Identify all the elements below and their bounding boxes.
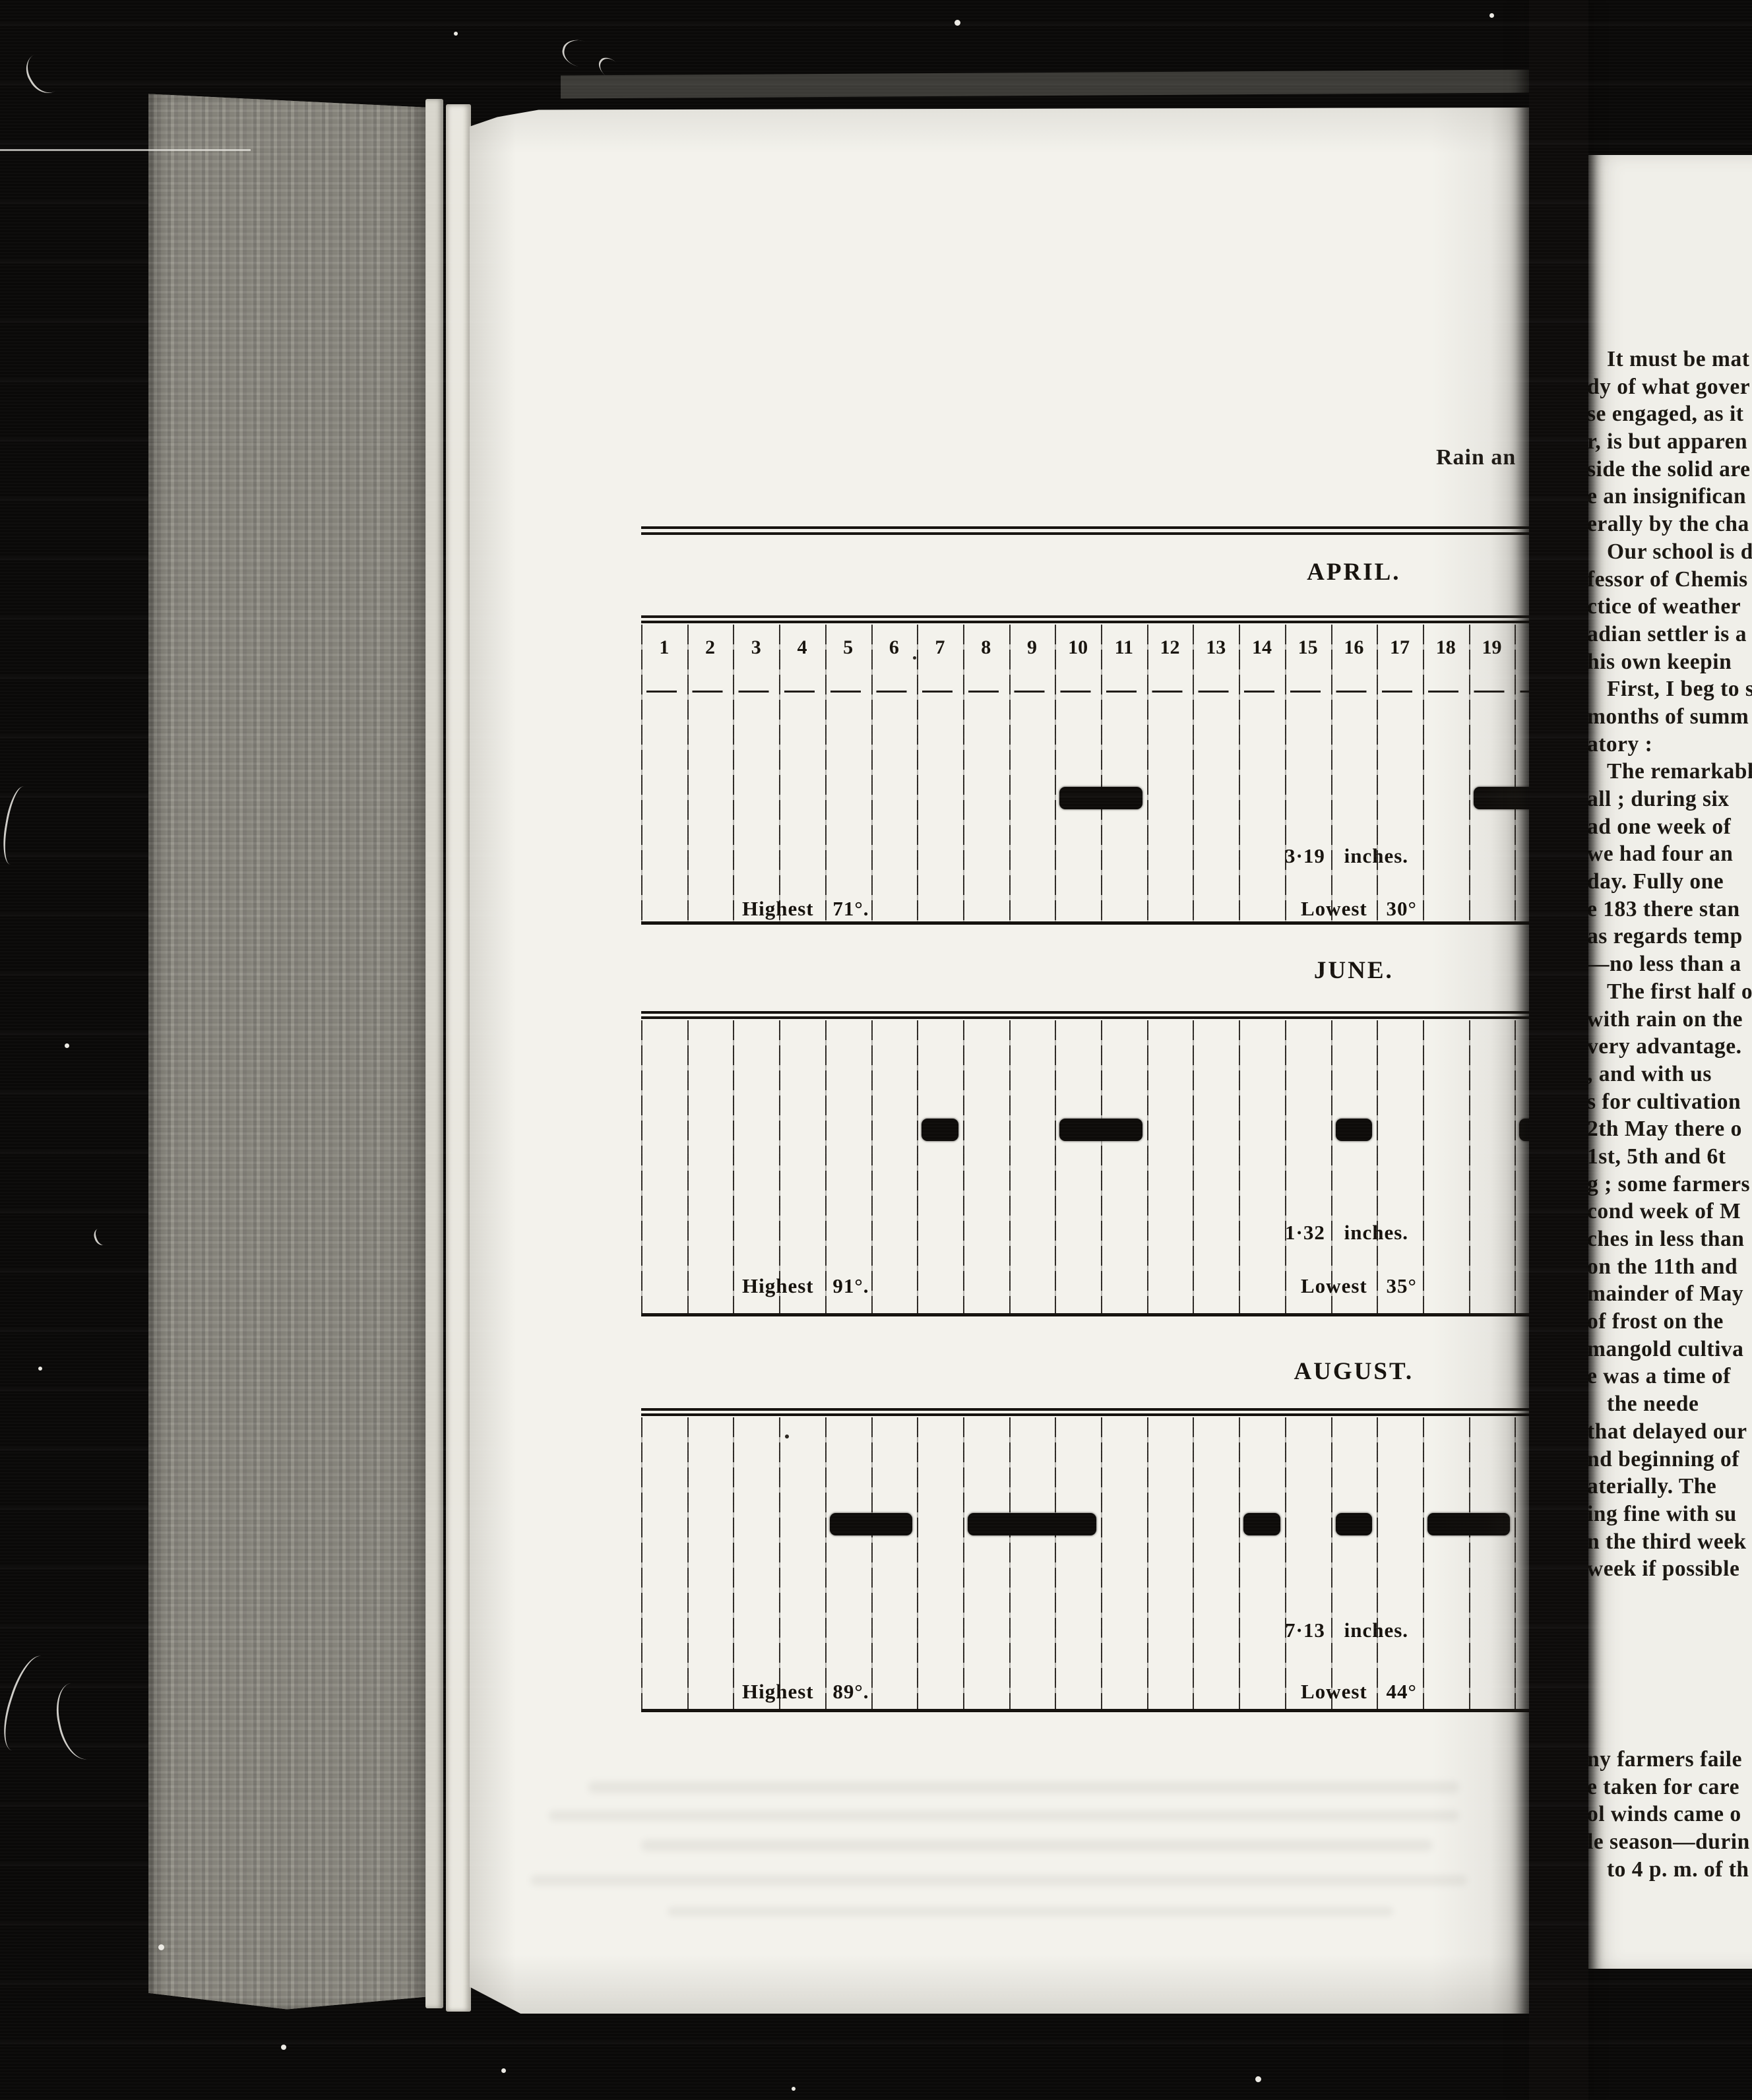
bleedthrough-streak xyxy=(530,1875,1467,1886)
cutoff-text-line: ing fine with su xyxy=(1587,1500,1752,1528)
rain-day-bar xyxy=(1059,1119,1142,1141)
day-number-label: 19 xyxy=(1469,636,1515,659)
day-column-line xyxy=(1469,625,1470,922)
day-number-label: 10 xyxy=(1055,636,1101,659)
day-column-line xyxy=(1377,625,1378,922)
lowest-temperature-label: Lowest 35° xyxy=(1301,1274,1417,1298)
book-page-stack-edge xyxy=(148,91,425,2010)
dust-artifact xyxy=(454,32,458,36)
day-column-line xyxy=(871,1020,873,1314)
right-page: It must be matdy of what goverse engaged… xyxy=(1586,155,1752,1969)
cutoff-text-line: , and with us xyxy=(1587,1061,1752,1088)
day-column-line xyxy=(1515,1417,1516,1710)
day-column-line xyxy=(1331,625,1332,922)
rainfall-total-label: 7·13 inches. xyxy=(1285,1619,1408,1642)
rain-chart-june: JUNE.1·32 inches.Highest 91°.Lowest 35° xyxy=(641,1011,1530,1316)
dust-artifact xyxy=(501,2068,506,2073)
rain-chart-april: APRIL.123456789101112131415161718193·19 … xyxy=(641,615,1530,925)
rain-day-bar xyxy=(1059,787,1142,809)
day-column-line xyxy=(1147,1020,1148,1314)
dust-artifact xyxy=(1489,13,1494,18)
cutoff-text-line: of frost on the xyxy=(1587,1308,1752,1336)
day-column-line xyxy=(1423,1417,1424,1710)
chart-bottom-rule xyxy=(641,1313,1530,1316)
day-number-label: 6 xyxy=(871,636,918,659)
day-number-label: 18 xyxy=(1423,636,1469,659)
day-column-line xyxy=(687,625,689,922)
dust-artifact xyxy=(954,20,960,26)
cutoff-text-line: 1st, 5th and 6t xyxy=(1587,1143,1752,1171)
chart-month-title: AUGUST. xyxy=(641,1357,1530,1386)
lowest-temperature-label: Lowest 44° xyxy=(1301,1680,1417,1704)
cutoff-text-line: erally by the cha xyxy=(1587,510,1752,538)
highest-temperature-label: Highest 91°. xyxy=(742,1274,869,1298)
dust-artifact xyxy=(38,1367,42,1371)
day-column-line xyxy=(1055,1020,1056,1314)
cutoff-text-line: ol winds came o xyxy=(1587,1801,1750,1828)
day-number-label: 7 xyxy=(917,636,963,659)
scratch-artifact xyxy=(0,149,251,151)
cutoff-text-line: as regards temp xyxy=(1587,923,1752,950)
page-stack-texture xyxy=(148,91,425,2010)
day-column-line xyxy=(917,1417,918,1710)
day-number-label: 3 xyxy=(733,636,779,659)
dust-artifact xyxy=(281,2045,286,2050)
day-column-line xyxy=(1377,1417,1378,1710)
day-column-line xyxy=(917,625,918,922)
bleedthrough-streak xyxy=(549,1810,1459,1821)
day-column-line xyxy=(733,1417,734,1710)
day-column-line xyxy=(1377,1020,1378,1314)
bleedthrough-streak xyxy=(641,1839,1433,1851)
cutoff-text-line: mainder of May xyxy=(1587,1280,1752,1308)
day-column-line xyxy=(641,1417,642,1710)
microfilm-book-scan: Rain an APRIL.12345678910111213141516171… xyxy=(0,0,1752,2100)
right-page-text-lower: ny farmers failee taken for careol winds… xyxy=(1587,1746,1750,1883)
cutoff-text-line: nd beginning of xyxy=(1587,1446,1752,1473)
rainfall-total-label: 3·19 inches. xyxy=(1285,844,1408,868)
dust-artifact xyxy=(65,1043,69,1048)
cutoff-text-line: cond week of M xyxy=(1587,1198,1752,1225)
cutoff-text-line: mangold cultiva xyxy=(1587,1336,1752,1363)
dust-artifact xyxy=(1255,2076,1261,2082)
day-column-line xyxy=(1423,625,1424,922)
rain-day-bar xyxy=(1336,1119,1373,1141)
scratch-artifact xyxy=(20,46,71,100)
chart-top-rule xyxy=(641,1408,1530,1417)
scratch-artifact xyxy=(559,36,605,72)
day-column-line xyxy=(1193,1417,1194,1710)
highest-temperature-label: Highest 71°. xyxy=(742,897,869,921)
rain-day-bar xyxy=(922,1119,958,1141)
cutoff-text-line: le season—durin xyxy=(1587,1828,1750,1856)
dust-artifact xyxy=(792,2087,796,2091)
page-edge-sliver xyxy=(425,99,443,2008)
day-column-line xyxy=(1423,1020,1424,1314)
day-column-line xyxy=(1193,625,1194,922)
right-page-text-upper: It must be matdy of what goverse engaged… xyxy=(1587,346,1752,1583)
day-number-label: 2 xyxy=(687,636,734,659)
day-column-line xyxy=(687,1020,689,1314)
day-column-line xyxy=(1009,1020,1011,1314)
cutoff-text-line: se engaged, as it xyxy=(1587,400,1752,428)
rain-day-bar xyxy=(1427,1513,1510,1535)
rain-chart-august: AUGUST.7·13 inches.Highest 89°.Lowest 44… xyxy=(641,1408,1530,1712)
ink-fleck xyxy=(785,1435,789,1438)
cutoff-text-line: months of summ xyxy=(1587,703,1752,731)
day-column-line xyxy=(1515,1020,1516,1314)
day-column-line xyxy=(1101,1417,1102,1710)
day-column-line xyxy=(963,1020,964,1314)
chart-bottom-rule xyxy=(641,921,1530,925)
day-column-line xyxy=(871,1417,873,1710)
cutoff-text-line: the neede xyxy=(1587,1390,1752,1418)
day-column-line xyxy=(871,625,873,922)
day-column-line xyxy=(963,1417,964,1710)
running-header: Rain an xyxy=(1436,445,1516,470)
rain-day-bar xyxy=(1336,1513,1373,1535)
day-header-dashed-rule xyxy=(646,691,1530,693)
day-number-label: 9 xyxy=(1009,636,1055,659)
cutoff-text-line: week if possible xyxy=(1587,1555,1752,1583)
day-number-label: 17 xyxy=(1377,636,1423,659)
table-top-rule xyxy=(641,526,1530,536)
day-number-label: 11 xyxy=(1101,636,1147,659)
dust-artifact xyxy=(158,1944,164,1950)
cutoff-text-line: that delayed our xyxy=(1587,1418,1752,1446)
cutoff-text-line: ches in less than xyxy=(1587,1225,1752,1253)
chart-month-title: APRIL. xyxy=(641,558,1530,586)
cutoff-text-line: First, I beg to s xyxy=(1587,675,1752,703)
day-column-line xyxy=(1239,1020,1240,1314)
day-column-line xyxy=(825,1417,827,1710)
cutoff-text-line: dy of what gover xyxy=(1587,373,1752,401)
day-column-line xyxy=(1469,1417,1470,1710)
day-column-line xyxy=(1009,1417,1011,1710)
day-column-line xyxy=(825,1020,827,1314)
cutoff-text-line: 2th May there o xyxy=(1587,1115,1752,1143)
day-column-line xyxy=(641,1020,642,1314)
day-column-line xyxy=(1101,625,1102,922)
day-column-line xyxy=(641,625,642,922)
day-column-line xyxy=(963,625,964,922)
scratch-artifact xyxy=(0,785,36,867)
day-column-line xyxy=(687,1417,689,1710)
day-column-line xyxy=(1285,1417,1286,1710)
cutoff-text-line: e 183 there stan xyxy=(1587,896,1752,923)
day-number-label: 8 xyxy=(963,636,1009,659)
cutoff-text-line: r, is but apparen xyxy=(1587,428,1752,456)
chart-bottom-rule xyxy=(641,1709,1530,1712)
bleedthrough-streak xyxy=(588,1781,1459,1793)
cutoff-text-line: side the solid are xyxy=(1587,456,1752,483)
cutoff-text-line: adian settler is a xyxy=(1587,621,1752,648)
cutoff-text-line: s for cultivation xyxy=(1587,1088,1752,1116)
day-column-line xyxy=(779,1417,780,1710)
day-column-line xyxy=(779,1020,780,1314)
ink-fleck xyxy=(913,656,916,660)
cutoff-text-line: —no less than a xyxy=(1587,950,1752,978)
cutoff-text-line: e was a time of xyxy=(1587,1363,1752,1390)
rain-day-bar xyxy=(968,1513,1096,1535)
cutoff-text-line: ad one week of xyxy=(1587,813,1752,841)
cutoff-text-line: atory : xyxy=(1587,731,1752,758)
cutoff-text-line: his own keepin xyxy=(1587,648,1752,676)
cutoff-text-line: It must be mat xyxy=(1587,346,1752,373)
left-page: Rain an APRIL.12345678910111213141516171… xyxy=(470,108,1530,2014)
scratch-artifact xyxy=(0,1651,60,1756)
day-column-line xyxy=(1331,1417,1332,1710)
upper-page-edge-band xyxy=(561,70,1530,99)
rain-day-bar xyxy=(1243,1513,1280,1535)
cutoff-text-line: g ; some farmers xyxy=(1587,1171,1752,1198)
rain-day-bar xyxy=(1474,787,1530,809)
day-column-line xyxy=(1101,1020,1102,1314)
day-column-line xyxy=(733,625,734,922)
cutoff-text-line: n the third week xyxy=(1587,1528,1752,1556)
rain-day-bar xyxy=(830,1513,912,1535)
day-column-line xyxy=(1331,1020,1332,1314)
chart-month-title: JUNE. xyxy=(641,956,1530,985)
day-column-line xyxy=(1147,625,1148,922)
lowest-temperature-label: Lowest 30° xyxy=(1301,897,1417,921)
cutoff-text-line: ctice of weather xyxy=(1587,593,1752,621)
day-number-label: 1 xyxy=(641,636,687,659)
day-column-line xyxy=(1193,1020,1194,1314)
day-column-line xyxy=(1055,1417,1056,1710)
page-edge-sliver xyxy=(446,104,471,2012)
cutoff-text-line: we had four an xyxy=(1587,840,1752,868)
cutoff-text-line: ny farmers faile xyxy=(1587,1746,1750,1774)
day-column-line xyxy=(1055,625,1056,922)
day-column-line xyxy=(1285,1020,1286,1314)
day-column-line xyxy=(825,625,827,922)
day-column-line xyxy=(1147,1417,1148,1710)
book-gutter-shadow xyxy=(1529,0,1588,2100)
day-column-line xyxy=(917,1020,918,1314)
rainfall-total-label: 1·32 inches. xyxy=(1285,1221,1408,1245)
chart-top-rule xyxy=(641,1011,1530,1020)
cutoff-text-line: Our school is d xyxy=(1587,538,1752,566)
cutoff-text-line: The first half of xyxy=(1587,978,1752,1006)
cutoff-text-line: very advantage. xyxy=(1587,1033,1752,1061)
day-number-label: 13 xyxy=(1193,636,1239,659)
cutoff-text-line: The remarkable xyxy=(1587,758,1752,786)
day-column-line xyxy=(779,625,780,922)
bleedthrough-streak xyxy=(668,1907,1393,1916)
day-column-line xyxy=(733,1020,734,1314)
day-column-line xyxy=(1239,1417,1240,1710)
cutoff-text-line: e an insignifican xyxy=(1587,483,1752,510)
cutoff-text-line: fessor of Chemis xyxy=(1587,566,1752,594)
day-number-label: 5 xyxy=(825,636,871,659)
cutoff-text-line: on the 11th and xyxy=(1587,1253,1752,1281)
day-column-line xyxy=(1515,625,1516,922)
cutoff-text-line: aterially. The xyxy=(1587,1473,1752,1500)
day-number-label: 16 xyxy=(1331,636,1377,659)
day-column-line xyxy=(1469,1020,1470,1314)
chart-top-rule xyxy=(641,615,1530,624)
day-column-line xyxy=(1009,625,1011,922)
cutoff-text-line: to 4 p. m. of th xyxy=(1587,1856,1750,1884)
day-column-line xyxy=(1285,625,1286,922)
highest-temperature-label: Highest 89°. xyxy=(742,1680,869,1704)
day-column-line xyxy=(1239,625,1240,922)
cutoff-text-line: day. Fully one xyxy=(1587,868,1752,896)
cutoff-text-line: e taken for care xyxy=(1587,1774,1750,1801)
cutoff-text-line: all ; during six xyxy=(1587,786,1752,813)
scratch-artifact xyxy=(50,1678,109,1763)
day-number-label: 15 xyxy=(1285,636,1331,659)
day-number-label: 4 xyxy=(779,636,825,659)
scratch-artifact xyxy=(92,1226,111,1247)
day-number-label: 12 xyxy=(1147,636,1193,659)
day-number-label: 14 xyxy=(1239,636,1285,659)
cutoff-text-line: with rain on the xyxy=(1587,1006,1752,1034)
